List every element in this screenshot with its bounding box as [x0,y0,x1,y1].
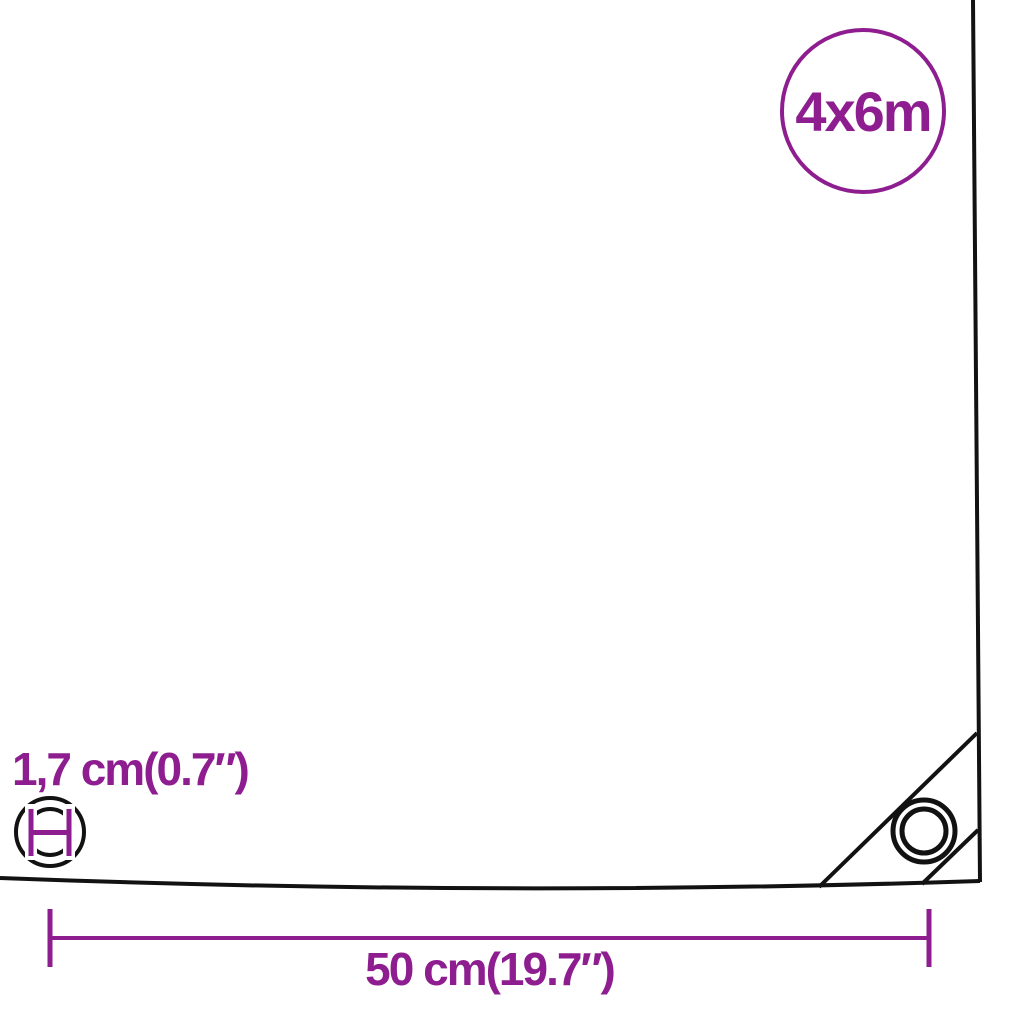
size-badge: 4x6m [780,28,946,194]
corner-hem-line [922,830,978,884]
eyelet-spacing-label: 50 cm(19.7″) [50,946,929,992]
size-badge-label: 4x6m [795,79,930,144]
tarp-right-edge [973,0,980,882]
grommet-icon [893,800,955,862]
eyelet-diameter-icon [16,798,84,866]
eyelet-diameter-label: 1,7 cm(0.7″) [12,746,248,792]
tarpaulin-dimension-diagram: 4x6m 1,7 cm(0.7″) 50 cm(19.7″) [0,0,1024,1024]
tarp-bottom-edge [0,878,980,888]
grommet-inner-ring [902,809,946,853]
corner-reinforcement [819,733,978,887]
